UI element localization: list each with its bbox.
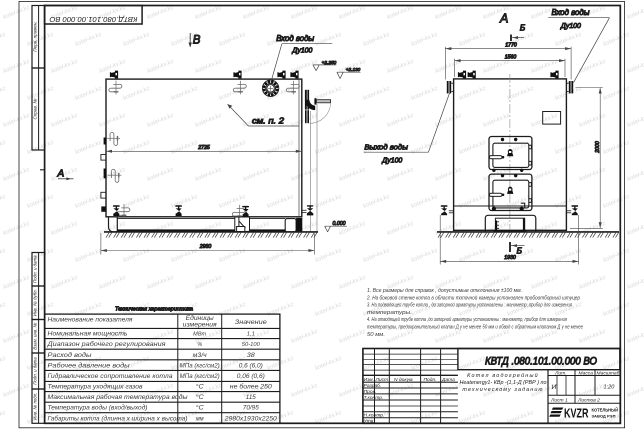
- svg-text:ЗАВОД РЭП: ЗАВОД РЭП: [592, 414, 616, 419]
- svg-text:Пров.: Пров.: [364, 389, 377, 395]
- svg-text:1:20: 1:20: [604, 385, 616, 391]
- svg-text:температуры.: температуры.: [367, 310, 412, 316]
- svg-text:Габариты котла (длинна х ширин: Габариты котла (длинна х ширина х высота…: [48, 416, 188, 422]
- svg-text:Утв.: Утв.: [364, 419, 375, 425]
- svg-text:Б: Б: [517, 246, 523, 256]
- svg-text:А: А: [57, 169, 65, 180]
- svg-text:38: 38: [247, 353, 256, 359]
- svg-text:техническому заданию: техническому заданию: [462, 387, 543, 393]
- svg-text:+2.130: +2.130: [346, 67, 361, 72]
- svg-text:Наименование показателя: Наименование показателя: [48, 318, 134, 324]
- svg-text:Взам. инв. №: Взам. инв. №: [33, 322, 38, 349]
- svg-text:температуры, предохранительный: температуры, предохранительный клапан Д …: [367, 324, 583, 331]
- svg-text:1770: 1770: [505, 42, 517, 48]
- svg-text:Перв. примен.: Перв. примен.: [33, 21, 38, 52]
- svg-text:2000: 2000: [595, 141, 601, 154]
- svg-text:°С: °С: [196, 385, 205, 391]
- svg-text:0.000: 0.000: [333, 221, 346, 227]
- svg-text:2725: 2725: [197, 145, 210, 151]
- svg-text:°С: °С: [196, 395, 205, 401]
- svg-text:Единицы: Единицы: [186, 316, 215, 322]
- svg-text:Лист 1: Лист 1: [550, 398, 568, 404]
- svg-text:Лит.: Лит.: [554, 370, 566, 376]
- svg-text:Heatenergy1- КВр -(1,1-Д (РВР: Heatenergy1- КВр -(1,1-Д (РВР ) по: [460, 380, 547, 386]
- svg-text:Подп. и дата: Подп. и дата: [33, 255, 38, 283]
- svg-text:мм: мм: [196, 416, 204, 422]
- svg-text:Диапазон рабочего регулировани: Диапазон рабочего регулирования: [46, 342, 166, 348]
- svg-text:Техническая характеристика: Техническая характеристика: [115, 307, 193, 313]
- svg-text:Расход воды: Расход воды: [48, 353, 93, 359]
- svg-text:Инв. № дубл.: Инв. № дубл.: [33, 289, 38, 316]
- svg-text:N докум.: N докум.: [394, 377, 414, 383]
- svg-text:50 мм.: 50 мм.: [367, 332, 385, 338]
- svg-text:Н.контр.: Н.контр.: [364, 413, 385, 419]
- svg-text:Ду100: Ду100: [381, 157, 402, 164]
- svg-text:%: %: [197, 342, 202, 348]
- svg-text:КВТД .080.101.00.000 ВО: КВТД .080.101.00.000 ВО: [485, 356, 597, 368]
- svg-text:Гидравлическое сопротивление к: Гидравлическое сопротивление котла: [48, 374, 174, 380]
- svg-text:Инв. № подл.: Инв. № подл.: [33, 393, 38, 420]
- svg-text:Т.контр.: Т.контр.: [364, 395, 384, 401]
- svg-text:Ду100: Ду100: [291, 48, 312, 55]
- svg-text:А: А: [499, 12, 508, 26]
- svg-text:Рабочее давление воды: Рабочее давление воды: [48, 363, 131, 369]
- svg-text:Б: Б: [520, 23, 526, 33]
- svg-text:МПа (кгс/см2): МПа (кгс/см2): [180, 374, 220, 380]
- svg-text:Значение: Значение: [235, 320, 268, 326]
- svg-text:Масса: Масса: [579, 370, 594, 376]
- svg-text:70/95: 70/95: [243, 406, 260, 412]
- svg-text:°С: °С: [196, 406, 205, 412]
- svg-text:см. п. 2: см. п. 2: [252, 116, 285, 125]
- svg-text:1930: 1930: [504, 255, 516, 261]
- svg-text:Дата: Дата: [441, 377, 455, 383]
- svg-text:КОТЕЛЬНЫЙ: КОТЕЛЬНЫЙ: [592, 408, 619, 413]
- svg-text:Котел водогрейный: Котел водогрейный: [467, 372, 539, 379]
- svg-text:м3/ч: м3/ч: [193, 353, 207, 359]
- svg-text:0,06 (0,6): 0,06 (0,6): [237, 374, 265, 380]
- svg-text:Температура уходящих газов: Температура уходящих газов: [48, 385, 143, 391]
- svg-text:0,6 (6,0): 0,6 (6,0): [239, 363, 263, 369]
- svg-text:Максимальная рабочая температу: Максимальная рабочая температура воды: [48, 395, 189, 401]
- svg-text:115: 115: [246, 395, 257, 401]
- svg-text:2980: 2980: [199, 244, 212, 250]
- svg-text:3. На подводящей трубе котла ,: 3. На подводящей трубе котла , до запорн…: [367, 302, 572, 309]
- svg-text:не более 250: не более 250: [230, 385, 273, 391]
- svg-text:Температура воды (вход/выход): Температура воды (вход/выход): [48, 406, 148, 412]
- svg-text:4. На отводящей трубе котла ,д: 4. На отводящей трубе котла ,до запорной…: [367, 316, 567, 323]
- svg-text:1560: 1560: [505, 54, 517, 60]
- svg-text:Листов 2: Листов 2: [577, 398, 600, 404]
- svg-text:KVZR: KVZR: [564, 405, 589, 420]
- svg-text:И: И: [552, 384, 557, 391]
- svg-text:Масштаб: Масштаб: [597, 370, 620, 376]
- svg-text:Подп. и дата: Подп. и дата: [33, 357, 38, 385]
- svg-text:МПа (кгс/см2): МПа (кгс/см2): [180, 363, 220, 369]
- svg-text:измерения: измерения: [183, 323, 218, 329]
- svg-text:Вход воды: Вход воды: [552, 8, 590, 17]
- svg-text:Лист: Лист: [375, 377, 389, 383]
- svg-text:Выход воды: Выход воды: [364, 143, 408, 152]
- svg-text:Разраб.: Разраб.: [364, 383, 382, 389]
- svg-text:Номинальная мощность: Номинальная мощность: [48, 332, 128, 338]
- svg-text:В: В: [193, 35, 201, 47]
- svg-text:МВт: МВт: [193, 332, 206, 338]
- svg-text:2980х1930х2250: 2980х1930х2250: [224, 416, 278, 422]
- svg-text:КВТД.080.101.00.000 ВО: КВТД.080.101.00.000 ВО: [49, 15, 137, 24]
- svg-text:Ду100: Ду100: [560, 23, 581, 30]
- svg-text:Изм.: Изм.: [364, 377, 374, 383]
- svg-text:50-100: 50-100: [242, 342, 261, 348]
- svg-text:Подп.: Подп.: [424, 377, 437, 383]
- svg-text:+2.250: +2.250: [322, 60, 337, 65]
- svg-text:2. На боковой стенке котла в о: 2. На боковой стенке котла в области топ…: [366, 294, 580, 301]
- svg-text:Вход воды: Вход воды: [276, 34, 314, 43]
- svg-text:Справ. №: Справ. №: [33, 99, 38, 120]
- svg-text:1,1: 1,1: [247, 332, 255, 338]
- svg-text:1. Все размеры для справок , д: 1. Все размеры для справок , допустимые …: [367, 288, 522, 294]
